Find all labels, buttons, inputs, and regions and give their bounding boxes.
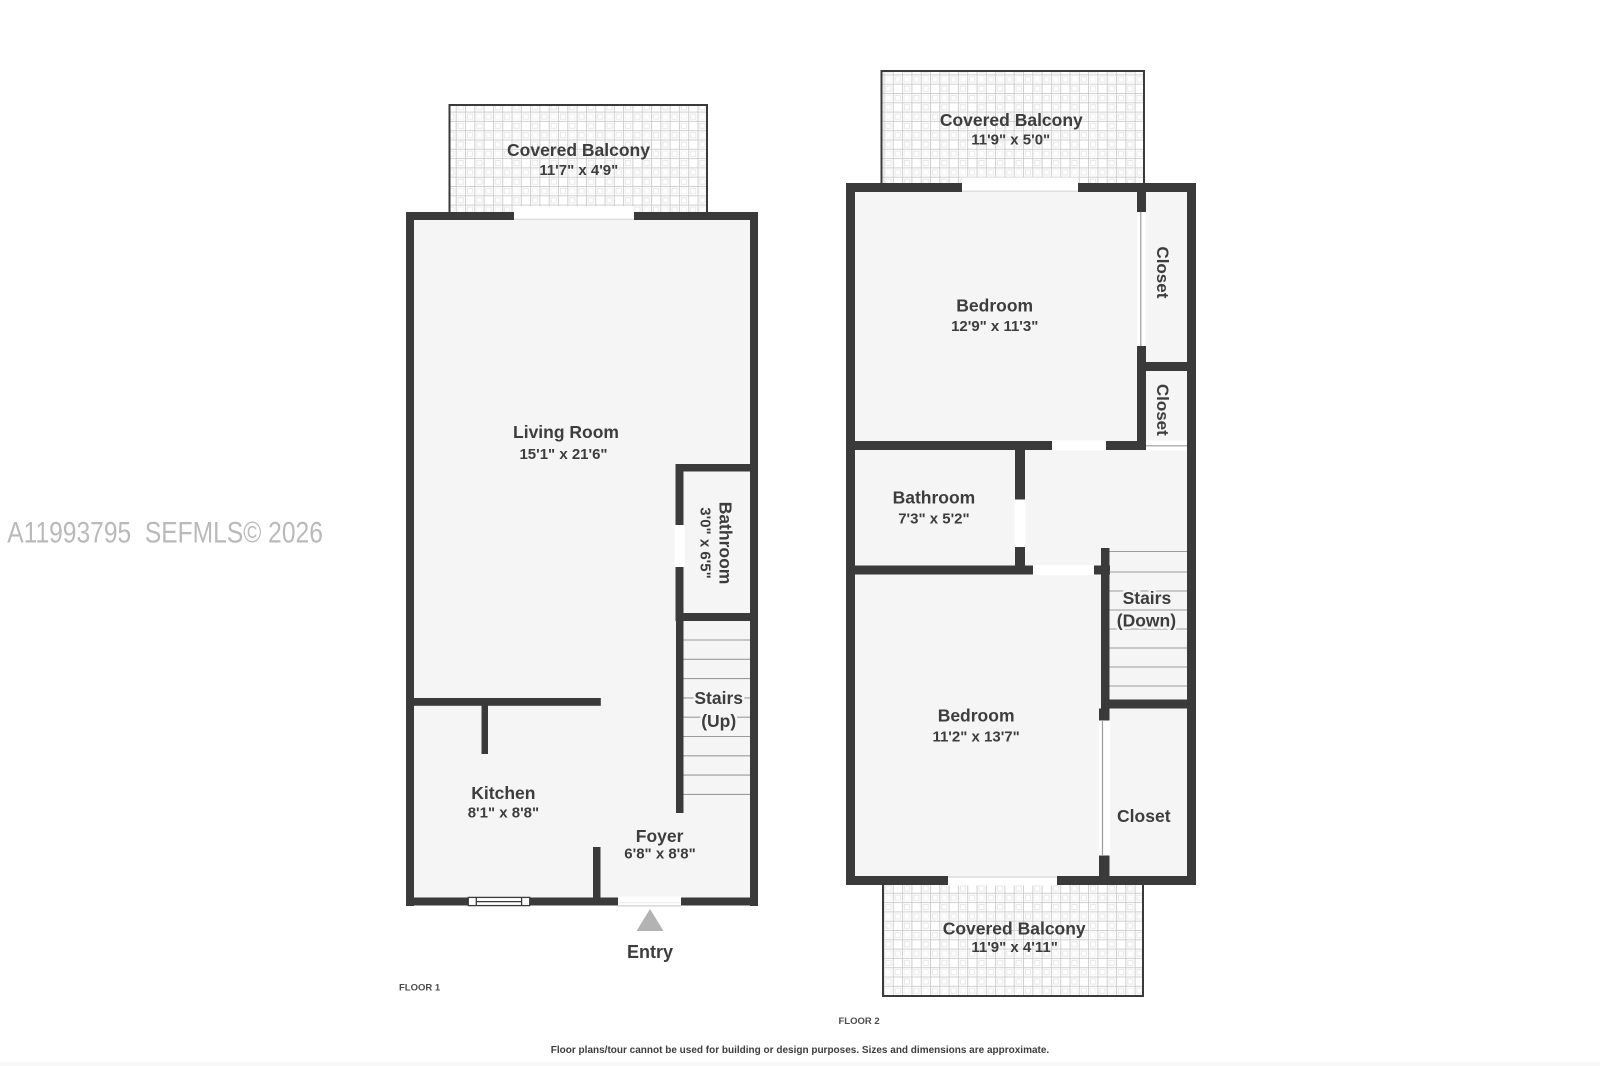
svg-text:11'2" x 13'7": 11'2" x 13'7" — [932, 728, 1019, 745]
svg-text:A11993795 SEFMLS© 2026: A11993795 SEFMLS© 2026 — [7, 515, 323, 549]
svg-text:Bathroom: Bathroom — [893, 487, 976, 507]
svg-text:Floor plans/tour cannot be use: Floor plans/tour cannot be used for buil… — [551, 1045, 1050, 1056]
svg-text:15'1" x 21'6": 15'1" x 21'6" — [519, 446, 607, 463]
svg-text:11'7" x 4'9": 11'7" x 4'9" — [539, 162, 618, 179]
svg-text:8'1" x 8'8": 8'1" x 8'8" — [468, 804, 539, 821]
svg-text:6'8" x 8'8": 6'8" x 8'8" — [624, 846, 695, 863]
svg-text:Bathroom: Bathroom — [715, 502, 735, 585]
svg-text:FLOOR 1: FLOOR 1 — [399, 983, 441, 994]
svg-text:Bedroom: Bedroom — [956, 296, 1033, 316]
svg-text:FLOOR 2: FLOOR 2 — [839, 1016, 880, 1027]
svg-text:(Up): (Up) — [701, 711, 736, 731]
svg-text:11'9" x 5'0": 11'9" x 5'0" — [971, 132, 1050, 149]
svg-text:Stairs: Stairs — [694, 688, 743, 708]
svg-text:Covered Balcony: Covered Balcony — [940, 110, 1083, 130]
svg-text:Covered Balcony: Covered Balcony — [507, 140, 650, 160]
svg-text:Bedroom: Bedroom — [938, 705, 1015, 725]
svg-text:11'9" x 4'11": 11'9" x 4'11" — [971, 939, 1057, 956]
svg-text:3'0" x 6'5": 3'0" x 6'5" — [697, 507, 714, 578]
svg-text:Living Room: Living Room — [513, 422, 619, 442]
svg-text:Entry: Entry — [627, 942, 673, 962]
svg-text:Closet: Closet — [1117, 806, 1171, 826]
svg-text:Kitchen: Kitchen — [471, 783, 535, 803]
svg-text:Stairs: Stairs — [1123, 588, 1172, 608]
svg-text:(Down): (Down) — [1117, 611, 1176, 631]
svg-text:Covered Balcony: Covered Balcony — [943, 918, 1086, 938]
svg-text:12'9" x 11'3": 12'9" x 11'3" — [951, 318, 1038, 335]
svg-text:Closet: Closet — [1153, 246, 1172, 298]
svg-text:7'3" x 5'2": 7'3" x 5'2" — [898, 511, 969, 528]
svg-text:Foyer: Foyer — [636, 826, 684, 846]
svg-text:Closet: Closet — [1153, 384, 1172, 436]
